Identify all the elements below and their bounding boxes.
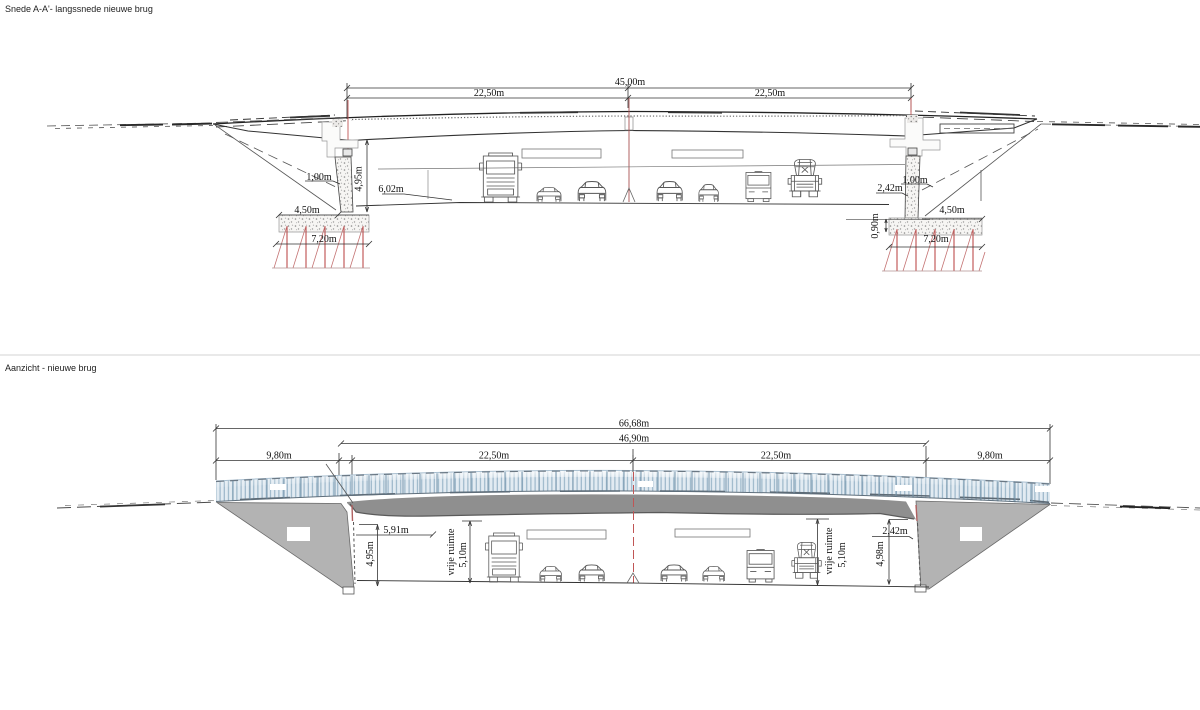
svg-text:46,90m: 46,90m: [619, 434, 650, 445]
svg-text:5,91m: 5,91m: [383, 525, 409, 536]
svg-text:22,50m: 22,50m: [755, 88, 786, 99]
svg-text:Aanzicht - nieuwe brug: Aanzicht - nieuwe brug: [5, 363, 97, 373]
svg-text:9,80m: 9,80m: [266, 451, 292, 462]
svg-text:4,95m: 4,95m: [354, 166, 365, 192]
svg-text:7,20m: 7,20m: [923, 234, 949, 245]
svg-text:4,50m: 4,50m: [939, 205, 965, 216]
svg-text:vrije ruimte: vrije ruimte: [446, 528, 457, 575]
svg-text:2,42m: 2,42m: [882, 526, 908, 537]
svg-text:0,90m: 0,90m: [870, 213, 881, 239]
svg-text:1,00m: 1,00m: [902, 175, 928, 186]
svg-text:vrije ruimte: vrije ruimte: [824, 527, 835, 574]
svg-text:4,50m: 4,50m: [294, 205, 320, 216]
svg-text:66,68m: 66,68m: [619, 419, 650, 430]
svg-text:22,50m: 22,50m: [761, 451, 792, 462]
svg-text:5,10m: 5,10m: [837, 542, 848, 568]
svg-text:6,02m: 6,02m: [378, 184, 404, 195]
svg-text:22,50m: 22,50m: [474, 88, 505, 99]
svg-text:7,20m: 7,20m: [311, 234, 337, 245]
svg-text:4,98m: 4,98m: [875, 541, 886, 567]
svg-text:4,95m: 4,95m: [365, 541, 376, 567]
svg-text:9,80m: 9,80m: [977, 451, 1003, 462]
svg-text:5,10m: 5,10m: [458, 542, 469, 568]
svg-text:1,00m: 1,00m: [306, 172, 332, 183]
svg-text:45,00m: 45,00m: [615, 77, 646, 88]
svg-text:2,42m: 2,42m: [877, 183, 903, 194]
svg-text:Snede A-A'- langssnede nieuwe: Snede A-A'- langssnede nieuwe brug: [5, 4, 153, 14]
svg-text:22,50m: 22,50m: [479, 451, 510, 462]
